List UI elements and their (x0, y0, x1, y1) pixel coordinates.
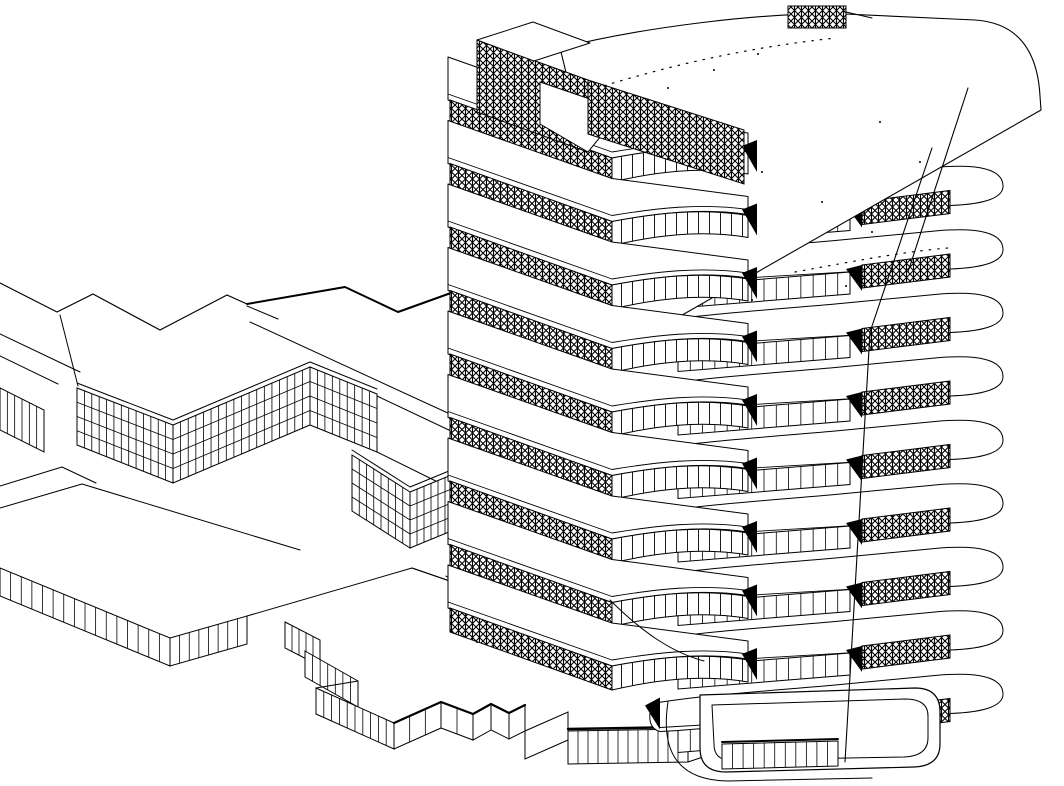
roof-zigzag-edge (0, 283, 247, 330)
base-window-strip-face (722, 741, 838, 769)
deck-tooth-face (394, 702, 441, 749)
deck-step-face (525, 712, 568, 759)
striped-wall-far-left (0, 388, 44, 452)
plate-edge (0, 334, 80, 372)
roof-fold-line (247, 306, 278, 319)
slab-parapet-step (0, 467, 96, 486)
roof-step-edge (60, 315, 78, 386)
roof-drip-dots (821, 201, 823, 203)
axonometric-drawing-canvas (0, 0, 1064, 786)
base-window-strip (722, 741, 838, 769)
axonometric-drawing-figure (0, 0, 1064, 786)
roof-drip-dots (871, 231, 873, 233)
plate-edge (0, 356, 58, 384)
slab-fascia-southeast (170, 616, 247, 666)
deck-tooth-face-face (394, 702, 441, 749)
roof-drip-dots (879, 121, 881, 123)
roof-drip-dots (845, 285, 847, 287)
slab-fascia-southwest (0, 568, 170, 666)
tower-left-wing (448, 22, 757, 690)
slab-roof-edge (0, 484, 300, 550)
curtain-wall-end (310, 367, 377, 452)
roof-drip-dots (919, 161, 921, 163)
left-podium (0, 283, 486, 666)
roof-drip-dots (713, 69, 715, 71)
roof-drip-dots (761, 171, 763, 173)
roof-drip-dots (757, 53, 759, 55)
roof-drip-dots (751, 299, 753, 301)
roof-drip-dots (667, 87, 669, 89)
deck-edge (247, 568, 470, 616)
roof-penthouse (788, 6, 846, 28)
deck-step-face-face (525, 712, 568, 759)
curtain-wall-left-wing (77, 388, 173, 483)
curtain-wall-right-wing (173, 367, 310, 483)
